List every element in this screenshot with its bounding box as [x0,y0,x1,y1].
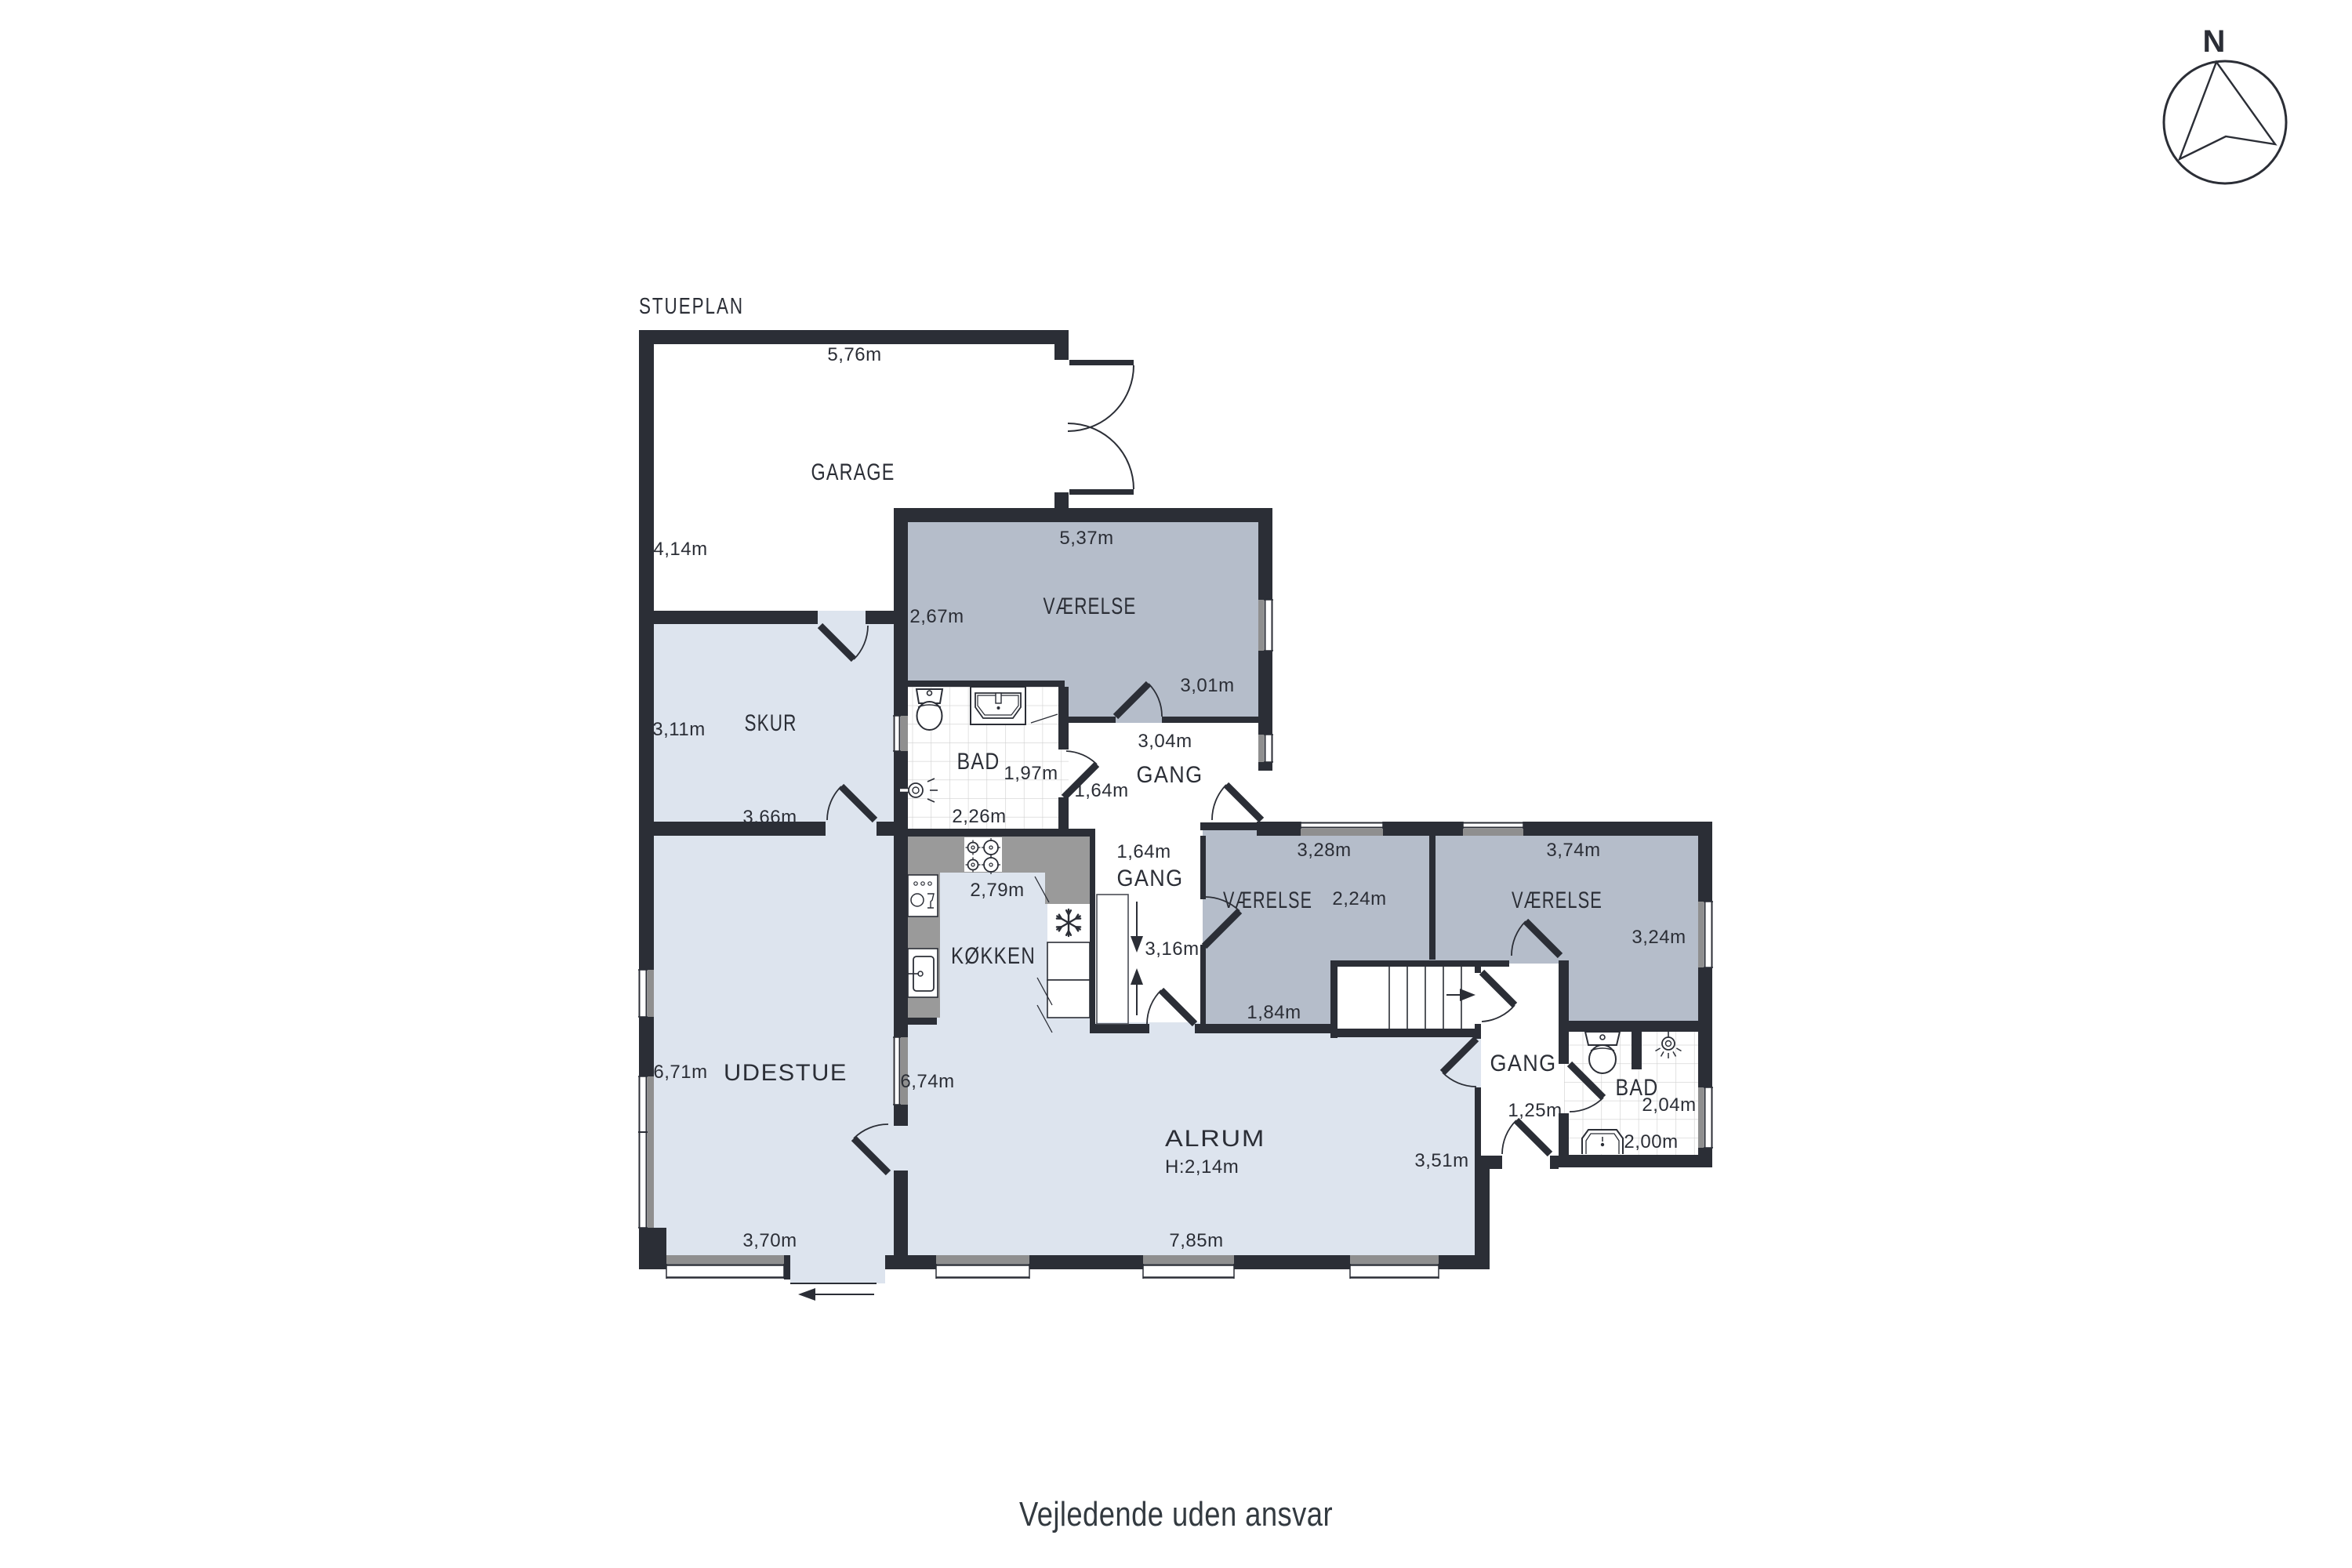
svg-text:5,37m: 5,37m [1059,528,1113,549]
svg-text:1,84m: 1,84m [1247,1002,1301,1023]
svg-text:1,64m: 1,64m [1116,841,1171,862]
svg-text:VÆRELSE: VÆRELSE [1044,593,1137,619]
svg-text:BAD: BAD [957,749,1000,775]
svg-text:3,16m: 3,16m [1145,938,1199,960]
svg-text:KØKKEN: KØKKEN [951,943,1036,969]
svg-text:3,28m: 3,28m [1297,840,1351,861]
svg-text:1,25m: 1,25m [1508,1100,1562,1121]
svg-text:2,00m: 2,00m [1624,1131,1678,1152]
svg-text:VÆRELSE: VÆRELSE [1512,887,1602,913]
svg-text:SKUR: SKUR [745,710,797,736]
svg-text:3,24m: 3,24m [1632,927,1686,948]
svg-text:4,14m: 4,14m [653,539,707,560]
svg-text:ALRUM: ALRUM [1165,1126,1265,1152]
svg-text:1,97m: 1,97m [1004,763,1058,784]
svg-text:STUEPLAN: STUEPLAN [639,294,744,319]
svg-text:N: N [2203,24,2226,59]
svg-text:GANG: GANG [1490,1051,1557,1076]
svg-text:GANG: GANG [1117,866,1184,891]
svg-text:Vejledende uden ansvar: Vejledende uden ansvar [1019,1495,1333,1534]
svg-text:VÆRELSE: VÆRELSE [1223,887,1312,913]
svg-text:3,51m: 3,51m [1414,1150,1468,1171]
svg-text:2,26m: 2,26m [952,806,1006,827]
svg-text:2,67m: 2,67m [909,606,964,627]
svg-text:5,76m: 5,76m [827,344,881,365]
svg-text:H:2,14m: H:2,14m [1165,1156,1239,1178]
svg-text:1,64m: 1,64m [1074,780,1128,801]
svg-text:3,01m: 3,01m [1180,675,1234,696]
svg-text:7,85m: 7,85m [1169,1230,1223,1251]
svg-text:3,66m: 3,66m [742,807,797,828]
svg-text:3,74m: 3,74m [1546,840,1600,861]
svg-text:2,24m: 2,24m [1332,888,1386,909]
svg-text:3,04m: 3,04m [1138,731,1192,752]
svg-text:UDESTUE: UDESTUE [724,1060,848,1086]
svg-text:2,04m: 2,04m [1642,1094,1696,1116]
svg-text:GARAGE: GARAGE [811,459,895,485]
svg-text:6,74m: 6,74m [900,1071,954,1092]
svg-text:GANG: GANG [1137,762,1203,788]
svg-text:2,79m: 2,79m [970,880,1024,901]
svg-text:6,71m: 6,71m [653,1062,707,1083]
svg-text:3,11m: 3,11m [652,719,705,740]
svg-text:3,70m: 3,70m [742,1230,797,1251]
